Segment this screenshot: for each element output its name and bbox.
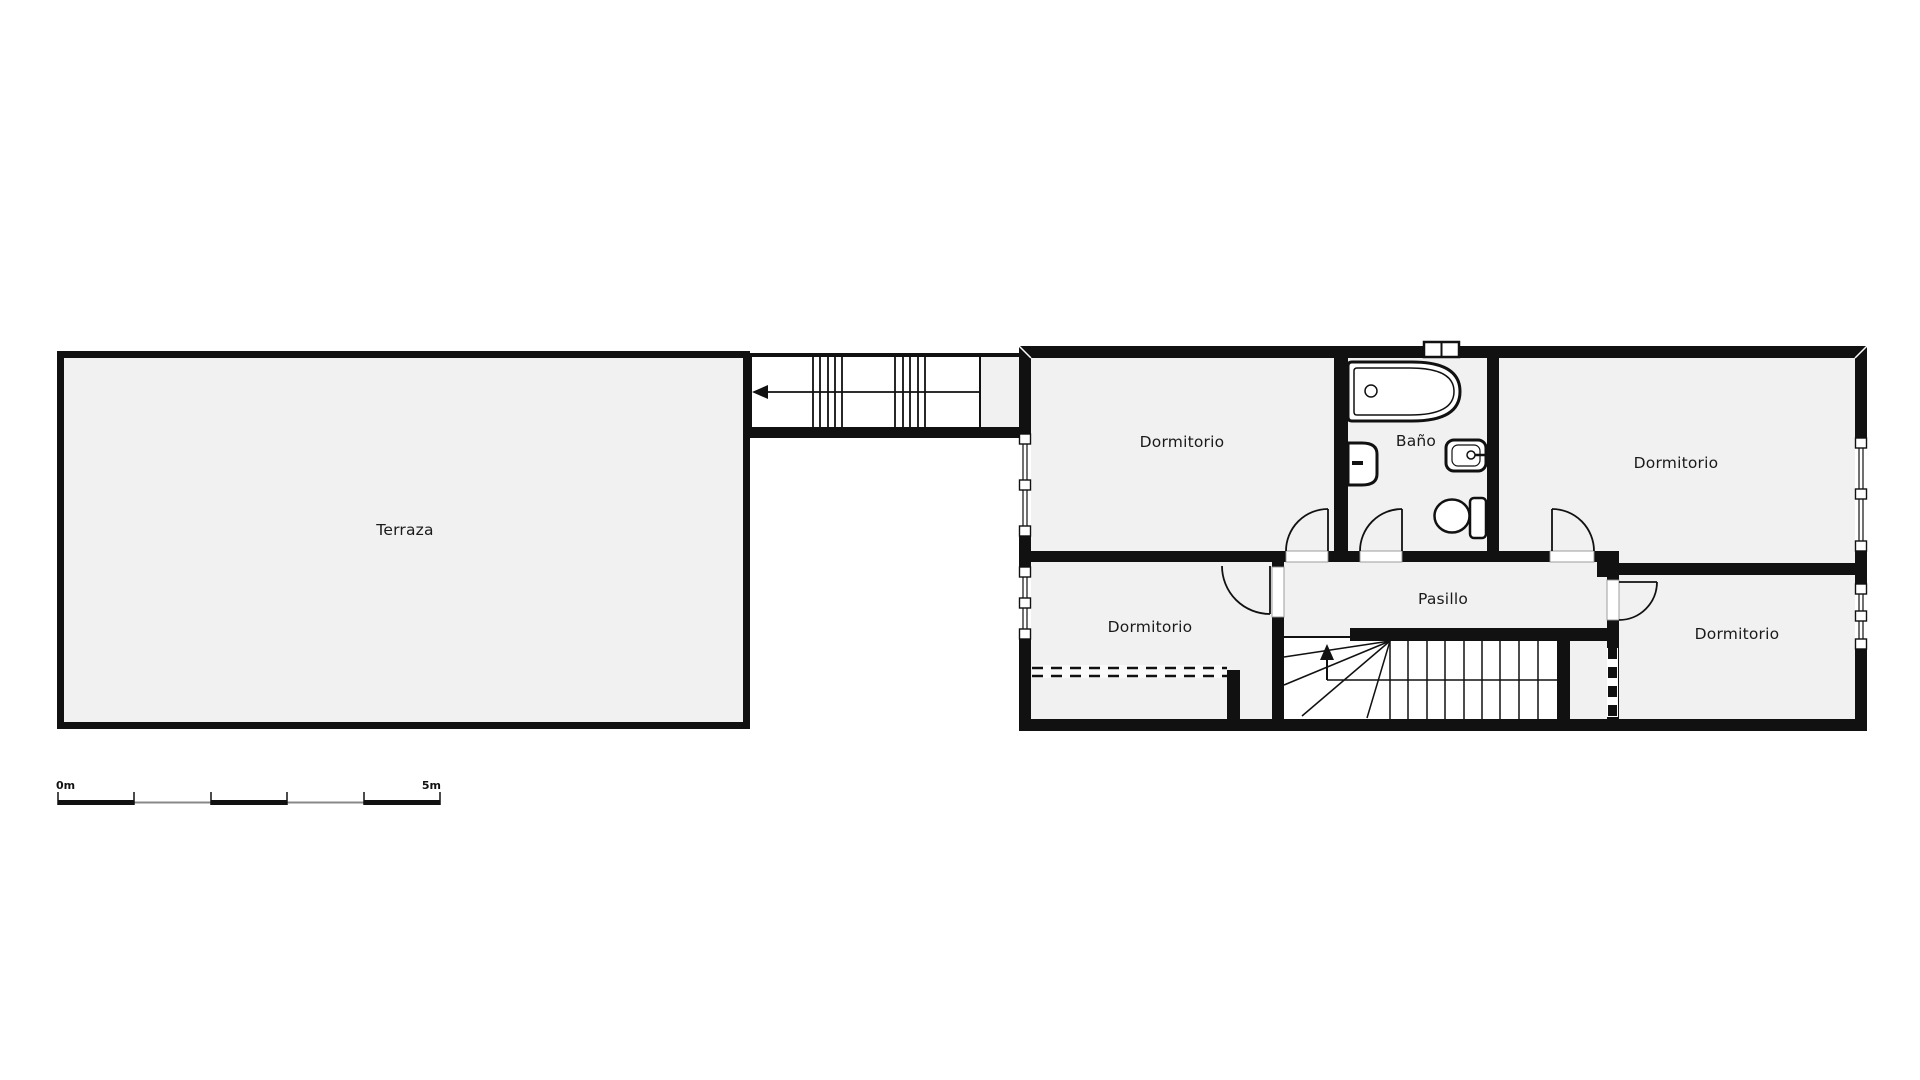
main-stair-area bbox=[1284, 628, 1557, 719]
window-icon bbox=[1019, 567, 1031, 639]
corridor-top-wall bbox=[750, 353, 1019, 357]
room-label-hallway: Pasillo bbox=[1418, 590, 1468, 608]
stair-void bbox=[1570, 641, 1607, 719]
room-label-bedroom-bottom-left: Dormitorio bbox=[1108, 618, 1193, 636]
dashed-ceiling-line bbox=[1032, 665, 1227, 678]
room-label-terraza: Terraza bbox=[376, 521, 433, 539]
bathtub-icon bbox=[1348, 362, 1460, 421]
room-label-bedroom-top-right: Dormitorio bbox=[1634, 454, 1719, 472]
window-icon bbox=[1855, 584, 1867, 649]
corridor-bottom-wall bbox=[748, 427, 1031, 438]
corridor-landing bbox=[980, 357, 1019, 427]
room-label-bedroom-top-left: Dormitorio bbox=[1140, 433, 1225, 451]
window-icon bbox=[1855, 438, 1867, 551]
sink-icon bbox=[1446, 440, 1487, 471]
hallway-landing bbox=[1284, 627, 1350, 636]
window-icon bbox=[1019, 434, 1031, 536]
bidet-icon bbox=[1348, 443, 1377, 485]
room-area-bedroom-top-left bbox=[1031, 358, 1334, 551]
room-label-bedroom-bottom-right: Dormitorio bbox=[1695, 625, 1780, 643]
dashed-ceiling-line bbox=[1607, 648, 1618, 717]
corridor-left-line bbox=[750, 357, 752, 427]
room-label-bathroom: Baño bbox=[1396, 432, 1436, 450]
scale-end-label: 5m bbox=[422, 779, 441, 792]
scale-start-label: 0m bbox=[56, 779, 75, 792]
window-icon bbox=[1424, 342, 1459, 357]
room-area-terraza bbox=[64, 358, 743, 722]
scale-bar bbox=[57, 792, 441, 805]
floor-plan-page: Terraza Dormitorio Baño Dormitorio Dormi… bbox=[0, 0, 1920, 1080]
floor-plan-drawing bbox=[0, 0, 1920, 1080]
